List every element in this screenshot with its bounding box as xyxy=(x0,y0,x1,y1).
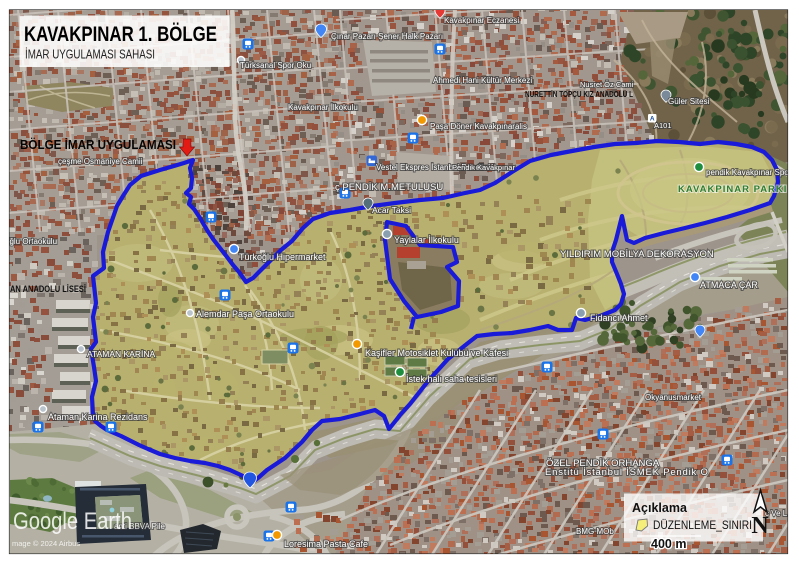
svg-text:Google Earth: Google Earth xyxy=(13,508,132,535)
svg-text:Enstitü İstanbul İSMEK Pendik: Enstitü İstanbul İSMEK Pendik O xyxy=(545,467,709,478)
svg-text:KAVAKPINAR 1. BÖLGE: KAVAKPINAR 1. BÖLGE xyxy=(24,21,217,46)
svg-text:DÜZENLEME_SINIRI: DÜZENLEME_SINIRI xyxy=(653,520,752,532)
svg-text:Kavakpınar Eczanesi: Kavakpınar Eczanesi xyxy=(444,16,519,25)
svg-text:Acar Taksi: Acar Taksi xyxy=(372,205,411,215)
svg-text:Alemdar Paşa Ortaokulu: Alemdar Paşa Ortaokulu xyxy=(196,309,294,319)
svg-text:oğlu Ortaokulu: oğlu Ortaokulu xyxy=(5,237,57,246)
svg-text:İMAR UYGULAMASI SAHASI: İMAR UYGULAMASI SAHASI xyxy=(25,47,155,62)
svg-text:YILDIRIM MOBİLYA DEKORASYON: YILDIRIM MOBİLYA DEKORASYON xyxy=(560,249,714,260)
svg-text:İstek halı saha tesisleri: İstek halı saha tesisleri xyxy=(406,374,497,384)
svg-text:400 m: 400 m xyxy=(651,537,686,551)
svg-text:Çınar Pazarı Şener Halk Pazarı: Çınar Pazarı Şener Halk Pazarı xyxy=(331,32,443,41)
svg-text:Açıklama: Açıklama xyxy=(632,501,688,515)
svg-text:N: N xyxy=(751,513,769,539)
svg-text:ATAMAN KARİNA: ATAMAN KARİNA xyxy=(87,349,155,359)
svg-text:Fidancı Ahmet: Fidancı Ahmet xyxy=(590,313,648,323)
svg-text:Ataman Karina Rezidans: Ataman Karina Rezidans xyxy=(48,412,148,422)
svg-text:çeşme Osmaniye Camii: çeşme Osmaniye Camii xyxy=(58,157,143,166)
svg-text:ç PENDİK M.METULUSU: ç PENDİK M.METULUSU xyxy=(335,182,443,193)
svg-text:ATMACA ÇAR: ATMACA ÇAR xyxy=(700,280,758,290)
svg-text:Okyanusmarket: Okyanusmarket xyxy=(645,393,702,402)
svg-text:BMG MOb: BMG MOb xyxy=(576,527,614,536)
svg-text:Nusret Öz Cami: Nusret Öz Cami xyxy=(580,80,634,89)
svg-text:AN ANADOLU LİSESİ: AN ANADOLU LİSESİ xyxy=(10,284,86,294)
svg-text:A101: A101 xyxy=(654,121,672,130)
svg-text:KAVAKPINAR PARKI: KAVAKPINAR PARKI xyxy=(678,184,787,195)
svg-text:Kavakpınar İlkokulu: Kavakpınar İlkokulu xyxy=(288,103,358,112)
svg-text:NURETTİN TOPÇU KIZ ANADOLU L: NURETTİN TOPÇU KIZ ANADOLU L xyxy=(525,89,633,99)
svg-text:Türkoğlu Hipermarket: Türkoğlu Hipermarket xyxy=(239,252,326,262)
svg-text:Güler Sitesi: Güler Sitesi xyxy=(668,97,710,106)
svg-text:Ahmedi Hani Kültür Merkezi: Ahmedi Hani Kültür Merkezi xyxy=(433,76,532,85)
svg-text:BÖLGE İMAR UYGULAMASI: BÖLGE İMAR UYGULAMASI xyxy=(20,137,176,152)
svg-text:Pendik Kavakpınar: Pendik Kavakpınar xyxy=(452,163,515,172)
svg-text:Loresima Pasta Cafe: Loresima Pasta Cafe xyxy=(284,539,368,549)
svg-text:Paşa Döner Kavakpınaralis: Paşa Döner Kavakpınaralis xyxy=(430,122,527,131)
svg-text:Türksanal Spor Oku: Türksanal Spor Oku xyxy=(240,61,311,70)
svg-text:Yaylalar İlkokulu: Yaylalar İlkokulu xyxy=(394,235,459,245)
svg-text:mage © 2024 Airbus: mage © 2024 Airbus xyxy=(12,539,80,548)
svg-text:Kaşifler Motosiklet Kulübü ve: Kaşifler Motosiklet Kulübü ve Kafesi xyxy=(365,348,508,358)
svg-text:pendik Kavakpınar Spor K: pendik Kavakpınar Spor K xyxy=(706,168,799,177)
